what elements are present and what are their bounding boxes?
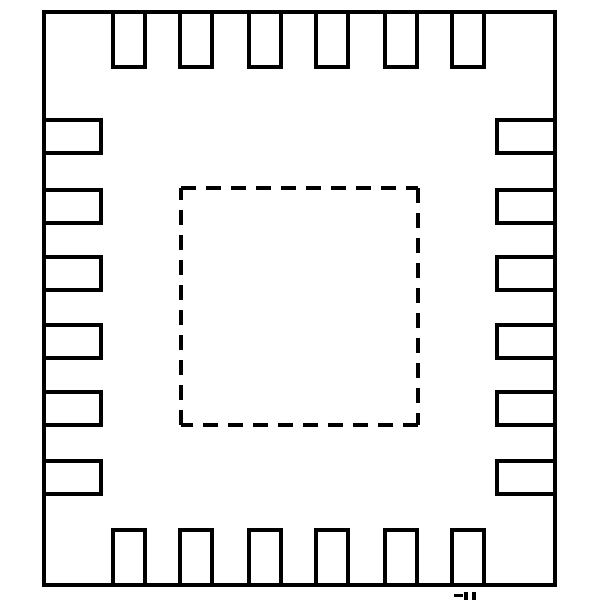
clipped-glyph-mark-2 [464, 592, 468, 600]
pin-pad-left-5 [44, 392, 101, 425]
pin-pad-right-1 [497, 120, 555, 153]
pin-pad-right-3 [497, 257, 555, 290]
clipped-glyph-mark-1 [454, 594, 463, 597]
pin-pad-right-4 [497, 325, 555, 358]
qfn-package-diagram [0, 0, 600, 600]
pin-pad-bottom-1 [113, 530, 145, 585]
pin-pad-right-6 [497, 461, 555, 494]
pin-pad-top-6 [452, 12, 484, 67]
pin-pad-bottom-4 [316, 530, 348, 585]
pin-pad-top-4 [316, 12, 348, 67]
pin-pad-right-5 [497, 392, 555, 425]
pin-pad-left-3 [44, 257, 101, 290]
pin-pad-top-3 [249, 12, 281, 67]
pin-pad-bottom-3 [249, 530, 281, 585]
pin-pad-left-4 [44, 325, 101, 358]
pin-pad-left-2 [44, 190, 101, 223]
pin-pad-top-1 [113, 12, 145, 67]
package-body-group [44, 12, 555, 585]
pin-pad-bottom-6 [452, 530, 484, 585]
pin-pad-top-2 [180, 12, 212, 67]
pin-pad-bottom-5 [385, 530, 417, 585]
exposed-pad-group [181, 188, 418, 425]
pin-pad-bottom-2 [180, 530, 212, 585]
diagram-canvas [0, 0, 600, 600]
pin-pad-top-5 [385, 12, 417, 67]
pin-pad-left-6 [44, 461, 101, 494]
clipped-glyph-mark-3 [472, 592, 476, 600]
pin-pad-left-1 [44, 120, 101, 153]
pin-pads-group [44, 12, 555, 585]
package-body-outline [44, 12, 555, 585]
pin-pad-right-2 [497, 190, 555, 223]
clipped-text-artifact [454, 592, 476, 600]
